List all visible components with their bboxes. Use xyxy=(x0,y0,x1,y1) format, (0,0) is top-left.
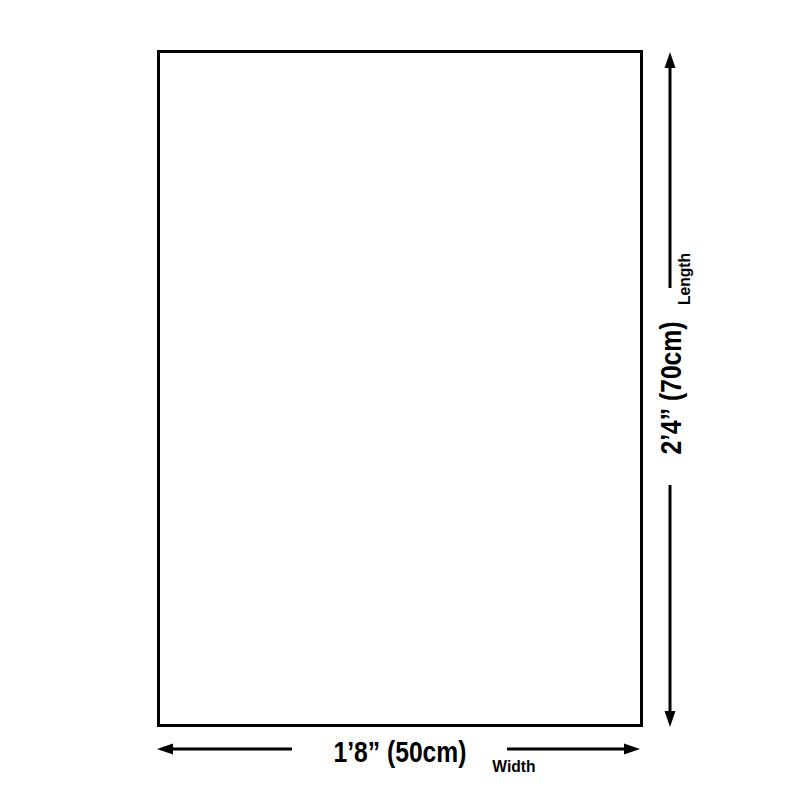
arrow-right-icon xyxy=(624,744,640,755)
length-label: Length xyxy=(676,253,693,305)
size-diagram: 2’4” (70cm) Length 1’8” (50cm) Width xyxy=(0,0,800,800)
width-label: Width xyxy=(492,758,535,775)
arrow-up-icon xyxy=(665,52,676,68)
arrow-left-icon xyxy=(157,744,173,755)
length-value: 2’4” (70cm) xyxy=(657,322,686,455)
width-value: 1’8” (50cm) xyxy=(334,738,467,767)
arrow-down-icon xyxy=(665,711,676,727)
